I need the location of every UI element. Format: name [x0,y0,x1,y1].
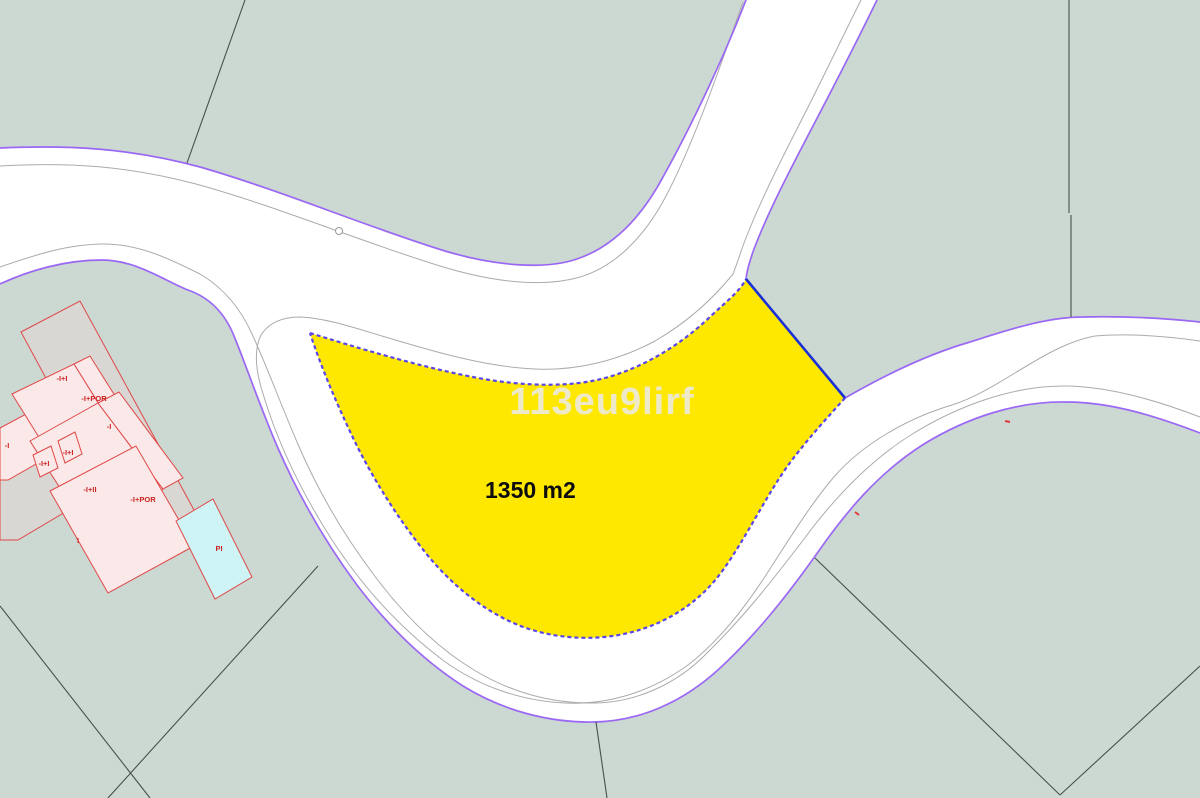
cadastral-map: -I+I-I+POR-I-I-I+I-I+I-I+II-I+PORIPI 113… [0,0,1200,798]
building-annotation: -I+POR [81,394,107,403]
plot-area-label: 1350 m2 [485,477,576,503]
watermark-text: 113eu9lirf [509,381,694,423]
cadastral-map-viewport: -I+I-I+POR-I-I-I+I-I+I-I+II-I+PORIPI 113… [0,0,1200,798]
building-annotation: -I+I [38,459,49,468]
building-annotation: PI [215,544,222,553]
building-annotation: -I+I [56,374,67,383]
building-annotation: I [77,536,79,545]
survey-point-marker [336,228,343,235]
building-annotation: -I [107,422,112,431]
red-tick-mark-a [1005,421,1010,422]
building-annotation: -I+II [83,485,96,494]
building-annotation: -I [5,441,10,450]
building-annotation: -I+POR [130,495,156,504]
building-annotation: -I+I [62,448,73,457]
